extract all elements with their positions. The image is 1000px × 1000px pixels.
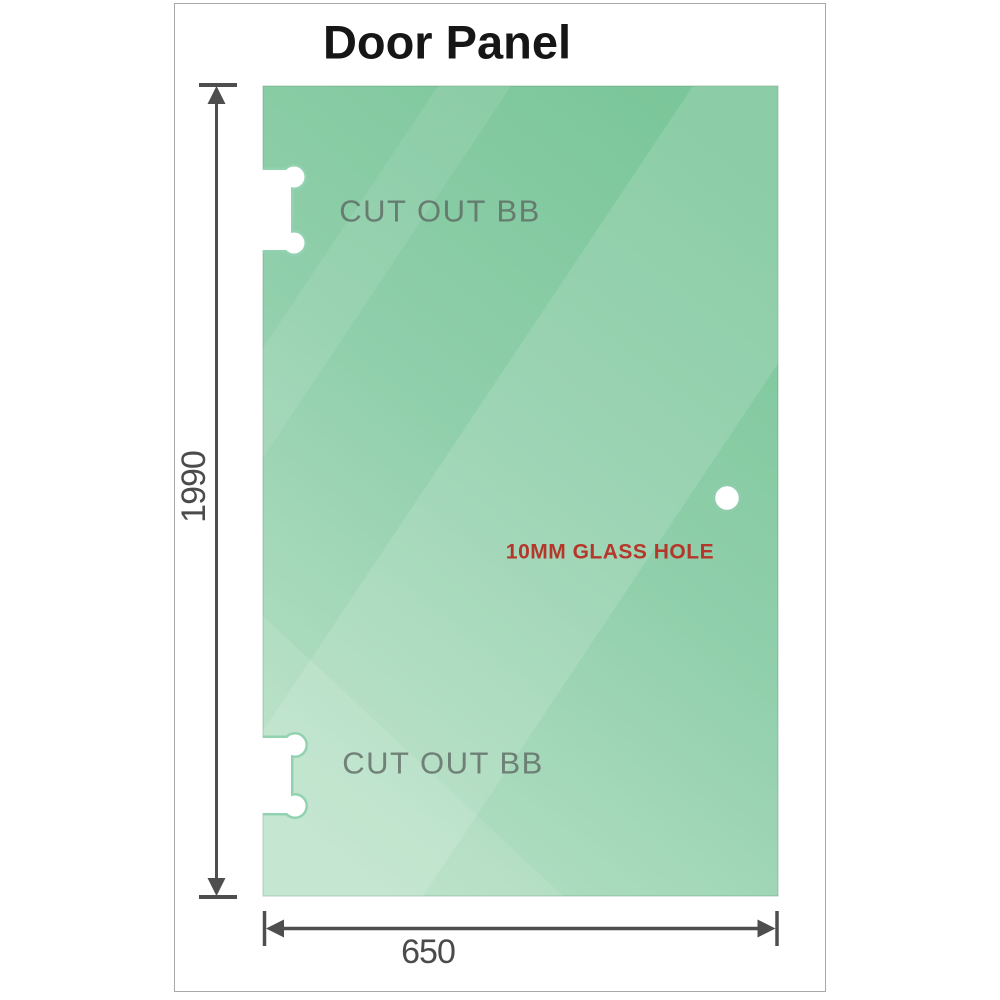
hinge-cutout-top-lobe: [284, 233, 305, 254]
arrow-left-icon: [266, 920, 284, 938]
arrow-right-icon: [758, 920, 776, 938]
page-title: Door Panel: [323, 19, 571, 66]
hinge-cutout-bottom-lobe: [285, 796, 306, 817]
door-panel-diagram: [0, 0, 1000, 1000]
hinge-cutout-top-lobe: [284, 167, 305, 188]
height-dimension-value: 1990: [177, 451, 211, 523]
glass-hole: [714, 485, 740, 511]
arrow-down-icon: [208, 878, 226, 896]
arrow-up-icon: [208, 86, 226, 104]
cutout-top-label: CUT OUT BB: [339, 196, 541, 227]
cutout-bottom-label: CUT OUT BB: [342, 748, 544, 779]
hinge-cutout-bottom-lobe: [285, 735, 306, 756]
width-dimension-value: 650: [401, 935, 455, 969]
hinge-cutout-bottom-notch: [250, 738, 291, 813]
glass-hole-label: 10MM GLASS HOLE: [506, 542, 714, 563]
width-dimension: [265, 911, 778, 946]
